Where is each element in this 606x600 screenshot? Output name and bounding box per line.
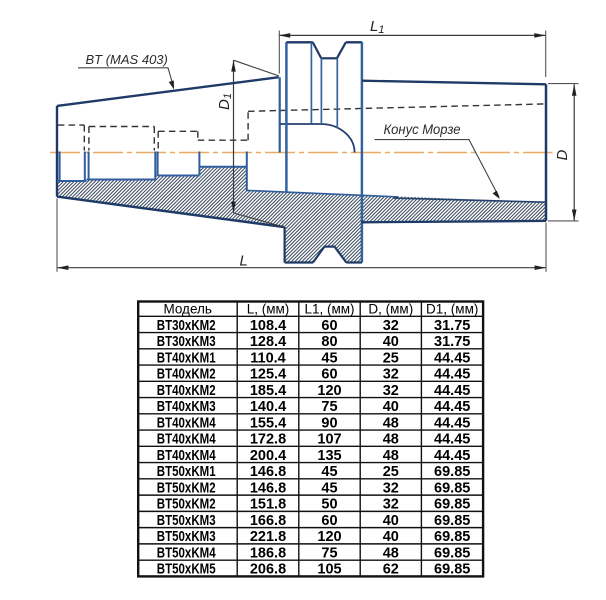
svg-text:135: 135 <box>317 448 341 464</box>
svg-text:BT50xKM3: BT50xKM3 <box>157 529 216 545</box>
svg-text:L, (мм): L, (мм) <box>247 301 290 316</box>
svg-text:60: 60 <box>321 318 337 334</box>
svg-text:120: 120 <box>317 383 341 399</box>
svg-text:60: 60 <box>321 367 337 383</box>
svg-text:44.45: 44.45 <box>434 367 470 383</box>
svg-text:120: 120 <box>317 529 341 545</box>
svg-text:BT50xKM4: BT50xKM4 <box>157 545 216 561</box>
svg-text:69.85: 69.85 <box>434 529 470 545</box>
svg-text:32: 32 <box>383 383 399 399</box>
svg-text:BT50xKM3: BT50xKM3 <box>157 513 216 529</box>
svg-text:Модель: Модель <box>163 301 211 316</box>
svg-text:48: 48 <box>383 415 399 431</box>
svg-text:69.85: 69.85 <box>434 464 470 480</box>
svg-text:146.8: 146.8 <box>250 464 286 480</box>
svg-text:69.85: 69.85 <box>434 513 470 529</box>
svg-text:48: 48 <box>383 448 399 464</box>
svg-text:60: 60 <box>321 513 337 529</box>
svg-text:BT50xKM2: BT50xKM2 <box>157 480 216 496</box>
svg-text:BT40xKM4: BT40xKM4 <box>157 432 216 448</box>
svg-text:L1, (мм): L1, (мм) <box>304 301 354 316</box>
svg-text:32: 32 <box>383 318 399 334</box>
svg-text:128.4: 128.4 <box>250 334 286 350</box>
svg-text:166.8: 166.8 <box>250 513 286 529</box>
svg-text:155.4: 155.4 <box>250 415 286 431</box>
svg-text:BT40xKM2: BT40xKM2 <box>157 383 216 399</box>
svg-text:32: 32 <box>383 480 399 496</box>
svg-text:44.45: 44.45 <box>434 399 470 415</box>
svg-text:110.4: 110.4 <box>250 350 286 366</box>
svg-text:40: 40 <box>383 529 399 545</box>
svg-text:BT30xKM3: BT30xKM3 <box>157 334 216 350</box>
svg-text:D1, (мм): D1, (мм) <box>426 301 478 316</box>
svg-text:48: 48 <box>383 432 399 448</box>
svg-text:40: 40 <box>383 513 399 529</box>
svg-text:69.85: 69.85 <box>434 545 470 561</box>
svg-text:L: L <box>240 253 248 270</box>
svg-text:50: 50 <box>321 497 337 513</box>
svg-text:31.75: 31.75 <box>434 318 470 334</box>
svg-text:200.4: 200.4 <box>250 448 286 464</box>
svg-text:48: 48 <box>383 545 399 561</box>
svg-text:172.8: 172.8 <box>250 432 286 448</box>
svg-text:75: 75 <box>321 399 337 415</box>
svg-text:BT50xKM5: BT50xKM5 <box>157 562 216 578</box>
svg-text:44.45: 44.45 <box>434 350 470 366</box>
svg-text:40: 40 <box>383 399 399 415</box>
svg-text:32: 32 <box>383 367 399 383</box>
svg-text:125.4: 125.4 <box>250 367 286 383</box>
svg-text:32: 32 <box>383 497 399 513</box>
svg-text:140.4: 140.4 <box>250 399 286 415</box>
svg-text:44.45: 44.45 <box>434 383 470 399</box>
svg-text:151.8: 151.8 <box>250 497 286 513</box>
svg-text:69.85: 69.85 <box>434 562 470 578</box>
svg-text:108.4: 108.4 <box>250 318 286 334</box>
svg-text:45: 45 <box>321 464 337 480</box>
svg-text:BT40xKM2: BT40xKM2 <box>157 367 216 383</box>
svg-text:221.8: 221.8 <box>250 529 286 545</box>
svg-text:D, (мм): D, (мм) <box>368 301 413 316</box>
svg-text:44.45: 44.45 <box>434 415 470 431</box>
svg-text:BT30xKM2: BT30xKM2 <box>157 318 216 334</box>
svg-text:186.8: 186.8 <box>250 545 286 561</box>
svg-text:80: 80 <box>321 334 337 350</box>
svg-text:40: 40 <box>383 334 399 350</box>
svg-text:BT40xKM4: BT40xKM4 <box>157 448 216 464</box>
svg-text:90: 90 <box>321 415 337 431</box>
svg-text:BT (MAS 403): BT (MAS 403) <box>86 52 168 67</box>
svg-text:BT50xKM2: BT50xKM2 <box>157 497 216 513</box>
svg-text:75: 75 <box>321 545 337 561</box>
svg-text:25: 25 <box>383 350 399 366</box>
svg-text:45: 45 <box>321 480 337 496</box>
svg-text:BT40xKM1: BT40xKM1 <box>157 350 216 366</box>
svg-text:69.85: 69.85 <box>434 480 470 496</box>
svg-text:D: D <box>554 150 571 161</box>
svg-text:BT40xKM4: BT40xKM4 <box>157 415 216 431</box>
svg-text:44.45: 44.45 <box>434 432 470 448</box>
svg-text:107: 107 <box>317 432 341 448</box>
svg-text:69.85: 69.85 <box>434 497 470 513</box>
svg-text:206.8: 206.8 <box>250 562 286 578</box>
svg-text:25: 25 <box>383 464 399 480</box>
svg-text:105: 105 <box>317 562 341 578</box>
svg-text:31.75: 31.75 <box>434 334 470 350</box>
svg-text:44.45: 44.45 <box>434 448 470 464</box>
svg-text:62: 62 <box>383 562 399 578</box>
svg-text:146.8: 146.8 <box>250 480 286 496</box>
svg-text:Конус Морзе: Конус Морзе <box>384 122 461 137</box>
svg-text:BT50xKM1: BT50xKM1 <box>157 464 216 480</box>
svg-text:45: 45 <box>321 350 337 366</box>
svg-text:BT40xKM3: BT40xKM3 <box>157 399 216 415</box>
svg-text:185.4: 185.4 <box>250 383 286 399</box>
